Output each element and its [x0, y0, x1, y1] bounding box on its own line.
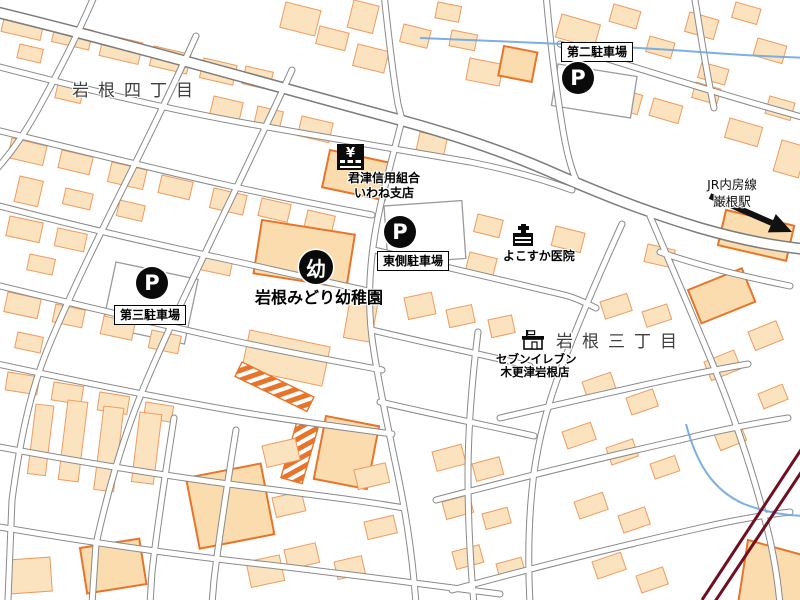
building: [347, 0, 379, 33]
building: [592, 552, 626, 579]
building: [773, 140, 800, 178]
poi-label-clinic[interactable]: よこすか医院: [503, 249, 575, 264]
building: [482, 507, 511, 529]
building: [8, 557, 52, 594]
building: [116, 200, 145, 221]
parking-icon[interactable]: P: [562, 62, 594, 94]
building: [27, 404, 53, 476]
road: [650, 216, 780, 600]
building: [748, 321, 783, 351]
building: [758, 384, 788, 409]
building: [280, 2, 321, 36]
poi-label-parking-3[interactable]: 第三駐車場: [114, 305, 186, 325]
kindergarten-icon[interactable]: 幼: [299, 250, 333, 284]
building: [732, 2, 761, 25]
building: [474, 214, 504, 238]
building: [17, 44, 44, 63]
building: [316, 26, 349, 51]
building: [27, 254, 56, 275]
poi-label-bank[interactable]: 君津信用組合 いわね支店: [338, 171, 430, 201]
building: [466, 58, 504, 86]
district-label-iwane-4chome: 岩根四丁目: [72, 76, 202, 101]
building: [626, 389, 658, 415]
building: [435, 2, 462, 22]
poi-label-parking-east[interactable]: 東側駐車場: [377, 251, 449, 271]
building: [446, 305, 475, 328]
road: [529, 224, 622, 600]
map-canvas[interactable]: 岩根四丁目 岩根三丁目 第二駐車場 P ¥ 君津信用組合 いわね支店 P 東側駐…: [0, 0, 800, 600]
svg-text:¥: ¥: [346, 146, 355, 161]
building: [364, 515, 397, 539]
parking-icon[interactable]: P: [384, 216, 416, 248]
building: [6, 216, 43, 243]
building: [432, 444, 466, 471]
building: [698, 62, 729, 85]
building: [498, 46, 537, 82]
building: [574, 492, 608, 519]
building: [618, 507, 650, 533]
building: [600, 293, 632, 319]
building: [488, 315, 515, 338]
building: [562, 422, 596, 449]
building: [650, 456, 680, 480]
building: [14, 176, 43, 207]
building: [15, 332, 44, 353]
poi-label-station[interactable]: JR内房線 巌根駅: [680, 176, 784, 210]
building: [649, 98, 683, 124]
building: [609, 4, 641, 29]
building: [642, 304, 672, 327]
building: [404, 292, 436, 319]
building: [400, 24, 432, 48]
building: [62, 188, 93, 210]
building: [724, 118, 762, 147]
parking-icon[interactable]: P: [136, 267, 168, 299]
building: [472, 457, 504, 482]
poi-label-parking-2[interactable]: 第二駐車場: [561, 42, 633, 62]
poi-label-kindergarten[interactable]: 岩根みどり幼稚園: [255, 284, 383, 308]
building: [646, 36, 675, 59]
building: [353, 44, 389, 73]
building: [58, 400, 88, 482]
building: [258, 198, 291, 222]
building: [54, 228, 87, 252]
building: [753, 38, 787, 64]
district-label-iwane-3chome: 岩根三丁目: [556, 327, 686, 352]
building: [636, 567, 668, 593]
poi-label-seven-eleven[interactable]: セブンイレブン 木更津岩根店: [496, 353, 574, 379]
